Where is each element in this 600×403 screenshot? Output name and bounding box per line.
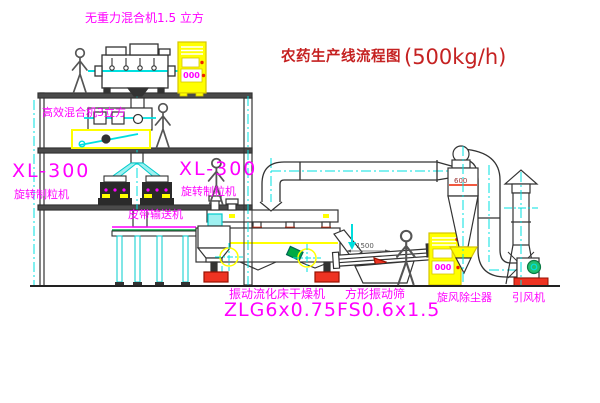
panel1-display: 000 [181, 72, 202, 80]
label-screen-model: FS0.6x1.5 [337, 301, 440, 320]
label-belt-conveyor: 皮带输送机 [128, 209, 183, 220]
person-figure [73, 49, 88, 93]
label-granulator1-model: XL-300 [12, 162, 90, 181]
induced-draft-fan [514, 258, 548, 286]
label-fan: 引风机 [512, 292, 545, 303]
granulator-1 [98, 176, 132, 205]
granulator-2 [140, 176, 174, 205]
screen-dimension-text: 1500 [356, 243, 374, 250]
label-gravity-mixer: 无重力混合机1.5 立方 [85, 12, 204, 24]
diagram-title-capacity: (500kg/h) [404, 45, 506, 69]
label-granulator2-model: XL-300 [179, 160, 257, 179]
diagram-title-text: 农药生产线流程图 [281, 45, 401, 69]
flow-diagram-canvas: 农药生产线流程图 (500kg/h) 无重力混合机1.5 立方 高效混合机3立方… [0, 0, 600, 403]
gravity-mixer [88, 44, 180, 96]
label-granulator1-name: 旋转制粒机 [14, 189, 69, 200]
belt-conveyor [112, 227, 196, 285]
label-cyclone: 旋风除尘器 [437, 292, 492, 303]
indicator-dot [200, 61, 203, 64]
cyclone-dimension-text: 600 [454, 178, 467, 185]
exhaust-duct [262, 160, 455, 202]
indicator-dot [202, 74, 205, 77]
panel2-display: 000 [432, 264, 454, 272]
label-dryer-model: ZLG6x0.75 [224, 301, 337, 320]
person-figure [156, 104, 171, 148]
control-panel-1 [178, 42, 206, 96]
label-granulator2-name: 旋转制粒机 [181, 186, 236, 197]
label-high-efficiency-mixer: 高效混合机3立方 [42, 107, 126, 118]
diagram-title: 农药生产线流程图 (500kg/h) [281, 45, 506, 69]
indicator-dot [456, 266, 459, 269]
